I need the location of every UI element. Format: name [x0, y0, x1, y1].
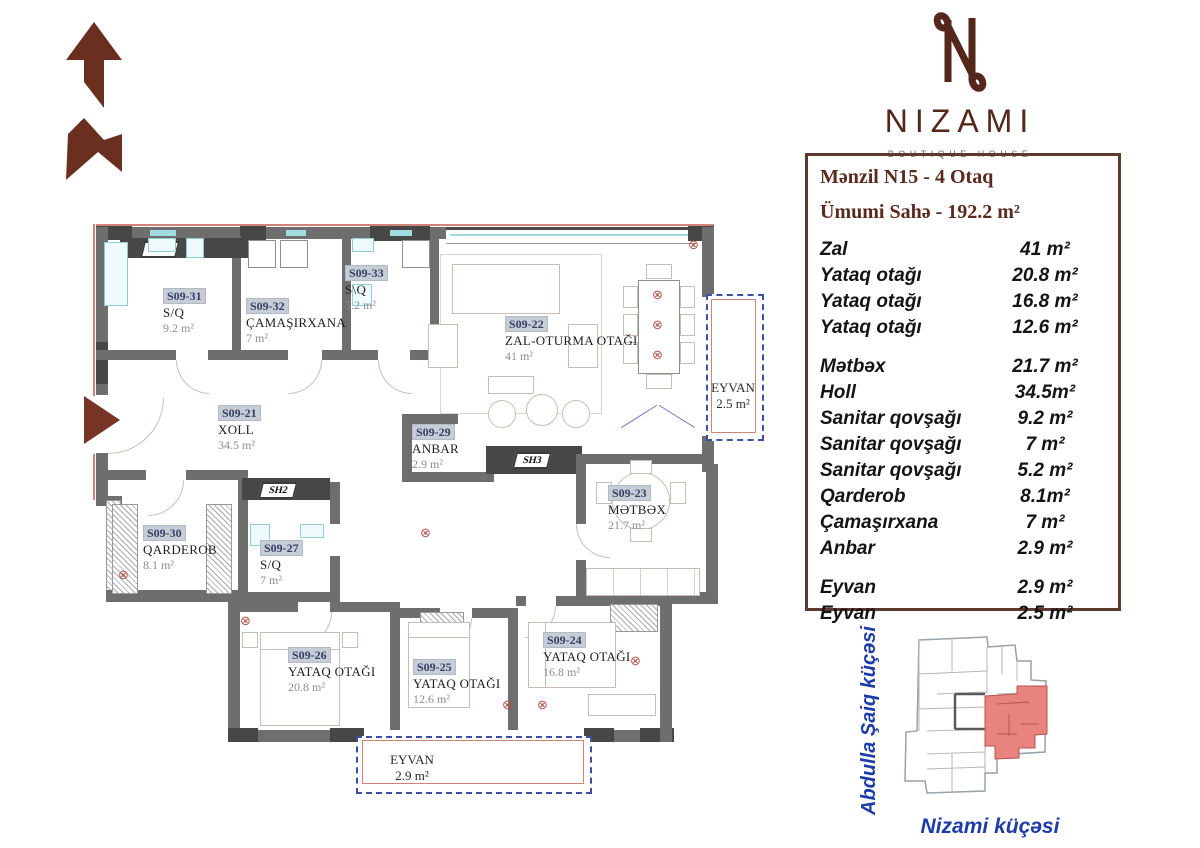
- area-row: Sanitar qovşağı5.2 m²: [820, 458, 1104, 484]
- room-group-balcony: Eyvan2.9 m² Eyvan2.5 m²: [820, 575, 1104, 627]
- room-label: S09-23 MƏTBƏX 21.7 m²: [608, 483, 666, 532]
- area-row: Yataq otağı12.6 m²: [820, 315, 1104, 341]
- room-area: 12.6 m²: [413, 692, 501, 706]
- ceiling-symbol-icon: ⊗: [240, 614, 251, 627]
- room-label: S09-31 S/Q 9.2 m²: [163, 286, 206, 335]
- room-name: Anbar: [820, 538, 986, 560]
- room-id-chip: S09-27: [260, 540, 303, 556]
- ceiling-symbol-icon: ⊗: [652, 288, 663, 301]
- shaft-label-text: SH3: [522, 455, 543, 466]
- perimeter-line: [93, 454, 95, 500]
- nizami-monogram-icon: [932, 10, 988, 94]
- balcony-label: EYVAN 2.5 m²: [702, 380, 764, 413]
- room-area: 20.8 m²: [288, 680, 376, 694]
- room-name: S/Q: [163, 305, 206, 321]
- furniture-chair: [646, 264, 672, 279]
- room-name: Sanitar qovşağı: [820, 460, 986, 482]
- furniture-chair: [680, 342, 695, 364]
- wall-segment: [208, 350, 288, 360]
- room-id-chip: S09-21: [218, 405, 261, 421]
- room-area: 8.1m²: [986, 486, 1104, 508]
- balcony-label: EYVAN 2.9 m²: [372, 752, 452, 785]
- room-label: S09-26 YATAQ OTAĞI 20.8 m²: [288, 645, 376, 694]
- room-area: 2.9 m²: [986, 538, 1104, 560]
- building-mini-map: [897, 634, 1057, 802]
- wall-segment: [472, 608, 510, 618]
- door-arc: [378, 360, 412, 394]
- room-id-chip: S09-33: [345, 265, 388, 281]
- furniture-armchair: [428, 324, 458, 368]
- appliance: [402, 240, 430, 268]
- area-row: Sanitar qovşağı7 m²: [820, 432, 1104, 458]
- room-id-chip: S09-32: [246, 298, 289, 314]
- room-id-chip: S09-31: [163, 288, 206, 304]
- wall-segment: [96, 342, 108, 384]
- room-id-chip: S09-29: [412, 424, 455, 440]
- room-area: 21.7 m²: [608, 518, 666, 532]
- appliance: [280, 240, 308, 268]
- room-area: 2.5 m²: [986, 603, 1104, 625]
- room-name: Çamaşırxana: [820, 512, 986, 534]
- wall-segment: [516, 596, 526, 606]
- brand-name: NIZAMI: [880, 103, 1040, 140]
- fixture: [148, 238, 176, 252]
- area-row: Yataq otağı16.8 m²: [820, 289, 1104, 315]
- area-row: Çamaşırxana7 m²: [820, 510, 1104, 536]
- room-id-chip: S09-25: [413, 659, 456, 675]
- wall-segment: [96, 470, 146, 480]
- room-area: 16.8 m²: [986, 291, 1104, 313]
- room-id-chip: S09-30: [143, 525, 186, 541]
- balcony-door-leaf: [621, 405, 657, 428]
- floor-plan: SH4 SH2 SH3: [90, 224, 770, 799]
- furniture-chair: [680, 314, 695, 336]
- room-label: S09-30 QARDEROB 8.1 m²: [143, 523, 217, 572]
- ceiling-symbol-icon: ⊗: [630, 654, 641, 667]
- wall-segment: [330, 602, 392, 612]
- furniture-sofa: [452, 264, 560, 314]
- furniture-chair: [670, 482, 686, 504]
- ceiling-symbol-icon: ⊗: [118, 568, 129, 581]
- room-area: 8.1 m²: [143, 558, 217, 572]
- room-name: Yataq otağı: [820, 265, 986, 287]
- room-area: 41 m²: [505, 349, 638, 363]
- room-area: 34.5 m²: [218, 438, 261, 452]
- room-name: Sanitar qovşağı: [820, 434, 986, 456]
- room-area: 5.2 m²: [986, 460, 1104, 482]
- room-area: 7 m²: [246, 331, 346, 345]
- ceiling-symbol-icon: ⊗: [652, 348, 663, 361]
- door-arc: [576, 524, 610, 558]
- appliance: [248, 240, 276, 268]
- furniture-counter: [586, 568, 700, 596]
- wall-segment: [96, 350, 176, 360]
- wall-segment: [330, 482, 340, 524]
- room-label: S09-25 YATAQ OTAĞI 12.6 m²: [413, 657, 501, 706]
- room-label: S09-21 XOLL 34.5 m²: [218, 403, 261, 452]
- room-name: ANBAR: [412, 441, 459, 457]
- furniture-chair: [623, 286, 638, 308]
- window-glass: [390, 230, 412, 236]
- floor-plan-sheet: NIZAMI BOUTIQUE HOUSE Mənzil N15 - 4 Ota…: [0, 0, 1200, 848]
- room-name: Holl: [820, 382, 986, 404]
- furniture-nightstand: [242, 632, 258, 648]
- north-arrow-icon: [64, 22, 128, 182]
- ceiling-symbol-icon: ⊗: [652, 318, 663, 331]
- door-arc: [148, 480, 184, 516]
- room-id-chip: S09-22: [505, 316, 548, 332]
- room-name: S/Q: [260, 557, 303, 573]
- room-name: Sanitar qovşağı: [820, 408, 986, 430]
- room-name: Zal: [820, 239, 986, 261]
- room-area: 5.2 m²: [345, 298, 388, 312]
- brand-logo: NIZAMI BOUTIQUE HOUSE: [880, 10, 1040, 159]
- area-row: Eyvan2.5 m²: [820, 601, 1104, 627]
- room-name: QARDEROB: [143, 542, 217, 558]
- room-area: 9.2 m²: [986, 408, 1104, 430]
- wall-segment: [238, 602, 298, 612]
- room-id-chip: S09-24: [543, 632, 586, 648]
- closet-hatch: [610, 604, 658, 632]
- room-name: Eyvan: [820, 603, 986, 625]
- total-area: Ümumi Sahə - 192.2 m²: [820, 201, 1104, 224]
- furniture-chair-round: [488, 400, 516, 428]
- balcony-area: 2.9 m²: [372, 768, 452, 784]
- furniture-chair-round: [562, 400, 590, 428]
- wall-segment: [402, 472, 494, 482]
- wall-segment: [186, 470, 244, 480]
- door-arc: [288, 360, 322, 394]
- area-row: Eyvan2.9 m²: [820, 575, 1104, 601]
- window-glass: [150, 230, 176, 236]
- area-row: Mətbəx21.7 m²: [820, 354, 1104, 380]
- room-label: S09-29 ANBAR 2.9 m²: [412, 422, 459, 471]
- shaft-label: SH3: [512, 452, 553, 469]
- apartment-info-panel: Mənzil N15 - 4 Otaq Ümumi Sahə - 192.2 m…: [805, 153, 1121, 611]
- room-area: 7 m²: [986, 512, 1104, 534]
- perimeter-line: [93, 224, 95, 396]
- furniture-table: [488, 376, 534, 394]
- room-area: 34.5m²: [986, 382, 1104, 404]
- room-name: Mətbəx: [820, 356, 986, 378]
- room-label: S09-33 S\Q 5.2 m²: [345, 263, 388, 312]
- room-name: Yataq otağı: [820, 317, 986, 339]
- room-label: S09-32 ÇAMAŞIRXANA 7 m²: [246, 296, 346, 345]
- room-group-service: Mətbəx21.7 m² Holl34.5m² Sanitar qovşağı…: [820, 354, 1104, 562]
- room-name: ÇAMAŞIRXANA: [246, 315, 346, 331]
- room-group-main: Zal41 m² Yataq otağı20.8 m² Yataq otağı1…: [820, 237, 1104, 341]
- room-name: Qarderob: [820, 486, 986, 508]
- furniture-desk: [588, 694, 656, 716]
- furniture-pillow: [408, 622, 470, 638]
- room-area: 12.6 m²: [986, 317, 1104, 339]
- window-glass: [450, 234, 692, 236]
- furniture-chair: [630, 460, 652, 474]
- area-row: Sanitar qovşağı9.2 m²: [820, 406, 1104, 432]
- area-row: Zal41 m²: [820, 237, 1104, 263]
- room-name: XOLL: [218, 422, 261, 438]
- area-row: Holl34.5m²: [820, 380, 1104, 406]
- area-row: Qarderob8.1m²: [820, 484, 1104, 510]
- balcony-name: EYVAN: [372, 752, 452, 768]
- room-label: S09-22 ZAL-OTURMA OTAĞI 41 m²: [505, 314, 638, 363]
- room-name: Yataq otağı: [820, 291, 986, 313]
- street-label-bottom: Nizami küçəsi: [880, 815, 1100, 839]
- ceiling-symbol-icon: ⊗: [420, 526, 431, 539]
- room-area: 9.2 m²: [163, 321, 206, 335]
- shaft-label-text: SH2: [268, 485, 289, 496]
- room-label: S09-27 S/Q 7 m²: [260, 538, 303, 587]
- fixture: [352, 238, 374, 252]
- room-name: YATAQ OTAĞI: [543, 649, 631, 665]
- room-area: 7 m²: [986, 434, 1104, 456]
- balcony-area: 2.5 m²: [702, 396, 764, 412]
- room-name: Eyvan: [820, 577, 986, 599]
- wall-segment: [660, 600, 672, 742]
- balcony-name: EYVAN: [702, 380, 764, 396]
- room-name: S\Q: [345, 282, 388, 298]
- room-area: 7 m²: [260, 573, 303, 587]
- room-name: MƏTBƏX: [608, 502, 666, 518]
- room-name: YATAQ OTAĞI: [288, 664, 376, 680]
- room-area: 2.9 m²: [986, 577, 1104, 599]
- fixture: [186, 238, 204, 258]
- wall-segment: [228, 590, 240, 742]
- wall-segment: [390, 602, 400, 730]
- street-label-left: Abdulla Şaiq küçəsi: [858, 626, 886, 816]
- room-area: 21.7 m²: [986, 356, 1104, 378]
- wall-segment: [238, 592, 340, 602]
- furniture-chair-round: [526, 394, 558, 426]
- wall-segment: [228, 728, 258, 742]
- room-label: S09-24 YATAQ OTAĞI 16.8 m²: [543, 630, 631, 679]
- room-id-chip: S09-23: [608, 485, 651, 501]
- room-name: YATAQ OTAĞI: [413, 676, 501, 692]
- door-arc: [176, 360, 210, 394]
- room-name: ZAL-OTURMA OTAĞI: [505, 333, 638, 349]
- door-arc: [108, 398, 164, 454]
- wall-segment: [706, 464, 718, 600]
- area-row: Anbar2.9 m²: [820, 536, 1104, 562]
- apartment-title: Mənzil N15 - 4 Otaq: [820, 166, 1104, 189]
- wall-segment: [576, 454, 586, 524]
- furniture-chair: [646, 374, 672, 389]
- furniture-chair: [680, 286, 695, 308]
- wall-segment: [702, 227, 714, 297]
- room-id-chip: S09-26: [288, 647, 331, 663]
- room-area: 41 m²: [986, 239, 1104, 261]
- room-area: 16.8 m²: [543, 665, 631, 679]
- shaft-label: SH2: [258, 482, 299, 499]
- fixture: [104, 242, 128, 306]
- balcony-door-leaf: [659, 405, 695, 428]
- ceiling-symbol-icon: ⊗: [688, 238, 699, 251]
- area-row: Yataq otağı20.8 m²: [820, 263, 1104, 289]
- balcony-inner-line: [711, 299, 756, 433]
- fixture: [300, 524, 324, 538]
- ceiling-symbol-icon: ⊗: [502, 698, 513, 711]
- room-area: 2.9 m²: [412, 457, 459, 471]
- room-area: 20.8 m²: [986, 265, 1104, 287]
- window-glass: [286, 230, 306, 236]
- ceiling-symbol-icon: ⊗: [537, 698, 548, 711]
